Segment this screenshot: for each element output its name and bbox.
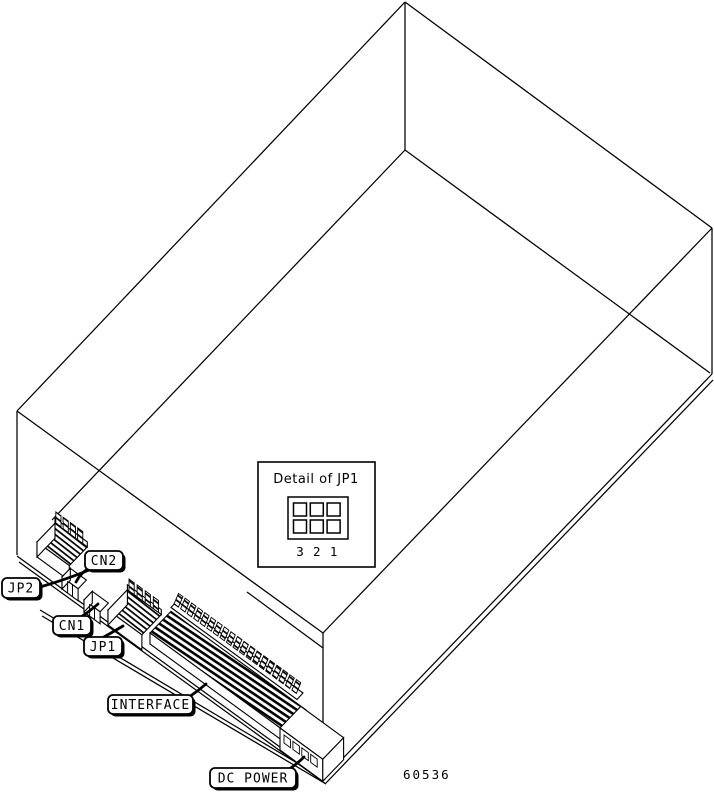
diagram-svg: Detail of JP1 3 2 1 JP2 CN2 CN1 xyxy=(0,0,714,793)
interface-label-text: INTERFACE xyxy=(111,698,190,713)
chassis-outline xyxy=(17,2,713,784)
inset-title: Detail of JP1 xyxy=(273,472,359,487)
detail-inset: Detail of JP1 3 2 1 xyxy=(258,462,375,567)
interface-connector xyxy=(150,593,306,742)
figure-number: 60536 xyxy=(403,767,451,782)
jp1-label-text: JP1 xyxy=(90,640,116,655)
jp2-label-text: JP2 xyxy=(8,582,34,597)
dc-power-label-text: DC POWER xyxy=(218,772,289,787)
lid-right-edge xyxy=(405,150,710,373)
pin-number-3: 3 xyxy=(296,544,304,559)
base-seam-edge xyxy=(247,592,323,648)
pin-number-2: 2 xyxy=(313,544,321,559)
callout-interface: INTERFACE xyxy=(108,684,206,717)
device-isometric-diagram: Detail of JP1 3 2 1 JP2 CN2 CN1 xyxy=(0,0,714,793)
cn2-label-text: CN2 xyxy=(91,554,117,569)
jp2-connector xyxy=(37,512,87,581)
callout-cn1: CN1 xyxy=(53,604,98,638)
pin-number-1: 1 xyxy=(330,544,338,559)
cn1-label-text: CN1 xyxy=(59,619,85,634)
